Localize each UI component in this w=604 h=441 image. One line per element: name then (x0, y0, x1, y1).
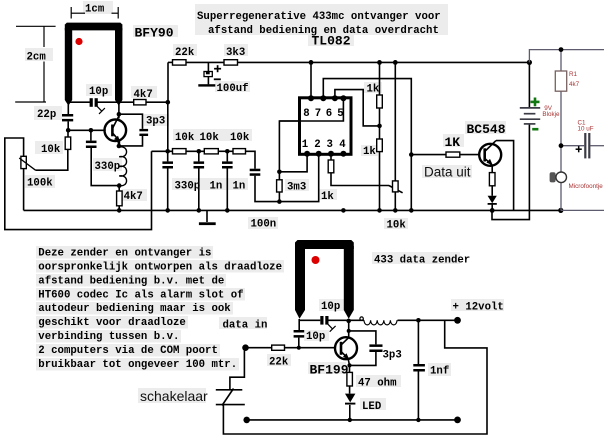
svg-text:1nf: 1nf (430, 366, 449, 378)
svg-text:R1: R1 (569, 71, 578, 78)
svg-text:1k: 1k (363, 146, 376, 158)
svg-text:bruikbaar tot ongeveer 100 mtr: bruikbaar tot ongeveer 100 mtr. (38, 359, 237, 371)
svg-text:4k7: 4k7 (124, 191, 143, 203)
svg-text:10k: 10k (200, 132, 220, 144)
svg-text:10k: 10k (41, 144, 61, 156)
svg-text:1cm: 1cm (85, 3, 105, 15)
svg-text:Blokje: Blokje (542, 111, 560, 118)
svg-text:3m3: 3m3 (287, 182, 306, 194)
svg-text:2 computers via de COM poort: 2 computers via de COM poort (38, 345, 218, 357)
svg-text:TL082: TL082 (312, 33, 351, 48)
svg-text:3p3: 3p3 (146, 116, 165, 128)
svg-text:100n: 100n (251, 219, 277, 231)
svg-text:10k: 10k (175, 132, 195, 144)
svg-text:geschikt voor draadloze: geschikt voor draadloze (38, 317, 186, 329)
svg-text:schakelaar: schakelaar (140, 388, 208, 404)
svg-text:1k: 1k (367, 84, 380, 96)
svg-text:BF199: BF199 (310, 362, 349, 377)
svg-text:Deze zender en ontvanger is: Deze zender en ontvanger is (38, 248, 211, 260)
svg-text:22p: 22p (37, 109, 56, 121)
svg-text:4k7: 4k7 (134, 89, 153, 101)
svg-text:BC548: BC548 (467, 122, 506, 137)
svg-text:oorspronkelijk ontworpen als d: oorspronkelijk ontworpen als draadloze (38, 262, 282, 274)
svg-text:autodeur bediening maar is ook: autodeur bediening maar is ook (38, 303, 231, 315)
svg-text:22k: 22k (175, 47, 195, 59)
svg-text:10p: 10p (306, 331, 325, 343)
svg-text:7: 7 (315, 108, 321, 120)
svg-text:10k: 10k (387, 220, 407, 232)
svg-text:4k7: 4k7 (569, 81, 580, 88)
svg-text:3: 3 (326, 139, 332, 151)
svg-text:data in: data in (223, 320, 268, 332)
svg-text:6: 6 (326, 108, 332, 120)
svg-text:22k: 22k (269, 357, 289, 369)
svg-text:1n: 1n (233, 181, 246, 193)
svg-text:2cm: 2cm (27, 52, 47, 64)
svg-text:2: 2 (314, 139, 320, 151)
svg-text:LED: LED (362, 401, 381, 413)
svg-text:100uf: 100uf (217, 83, 249, 95)
svg-text:1K: 1K (445, 135, 461, 150)
svg-text:8: 8 (303, 108, 309, 120)
svg-text:10k: 10k (230, 132, 250, 144)
svg-text:4: 4 (339, 139, 346, 151)
svg-text:1n: 1n (210, 181, 223, 193)
svg-text:10 uF: 10 uF (578, 125, 594, 132)
svg-text:47 ohm: 47 ohm (358, 378, 397, 390)
svg-text:1k: 1k (321, 191, 334, 203)
svg-text:330p: 330p (175, 181, 201, 193)
svg-text:3p3: 3p3 (383, 350, 402, 362)
svg-text:Superregenerative 433mc ontvan: Superregenerative 433mc ontvanger voor (197, 11, 441, 23)
svg-text:330p: 330p (95, 161, 121, 173)
svg-text:433 data zender: 433 data zender (374, 255, 470, 267)
svg-text:Data uit: Data uit (424, 165, 471, 180)
svg-text:BFY90: BFY90 (135, 25, 174, 40)
svg-text:10p: 10p (89, 86, 108, 98)
svg-text:10p: 10p (321, 301, 340, 313)
svg-text:1: 1 (302, 139, 308, 151)
svg-text:100k: 100k (27, 178, 53, 190)
svg-text:Microfoontje: Microfoontje (569, 183, 604, 190)
svg-text:afstand bediening b.v. met de: afstand bediening b.v. met de (38, 275, 224, 287)
svg-text:+ 12volt: + 12volt (453, 302, 504, 314)
svg-text:verbinding tussen b.v.: verbinding tussen b.v. (38, 331, 179, 343)
svg-text:5: 5 (337, 108, 343, 120)
svg-text:3k3: 3k3 (226, 47, 245, 59)
svg-text:HT600 codec Ic als alarm slot: HT600 codec Ic als alarm slot of (38, 289, 243, 301)
